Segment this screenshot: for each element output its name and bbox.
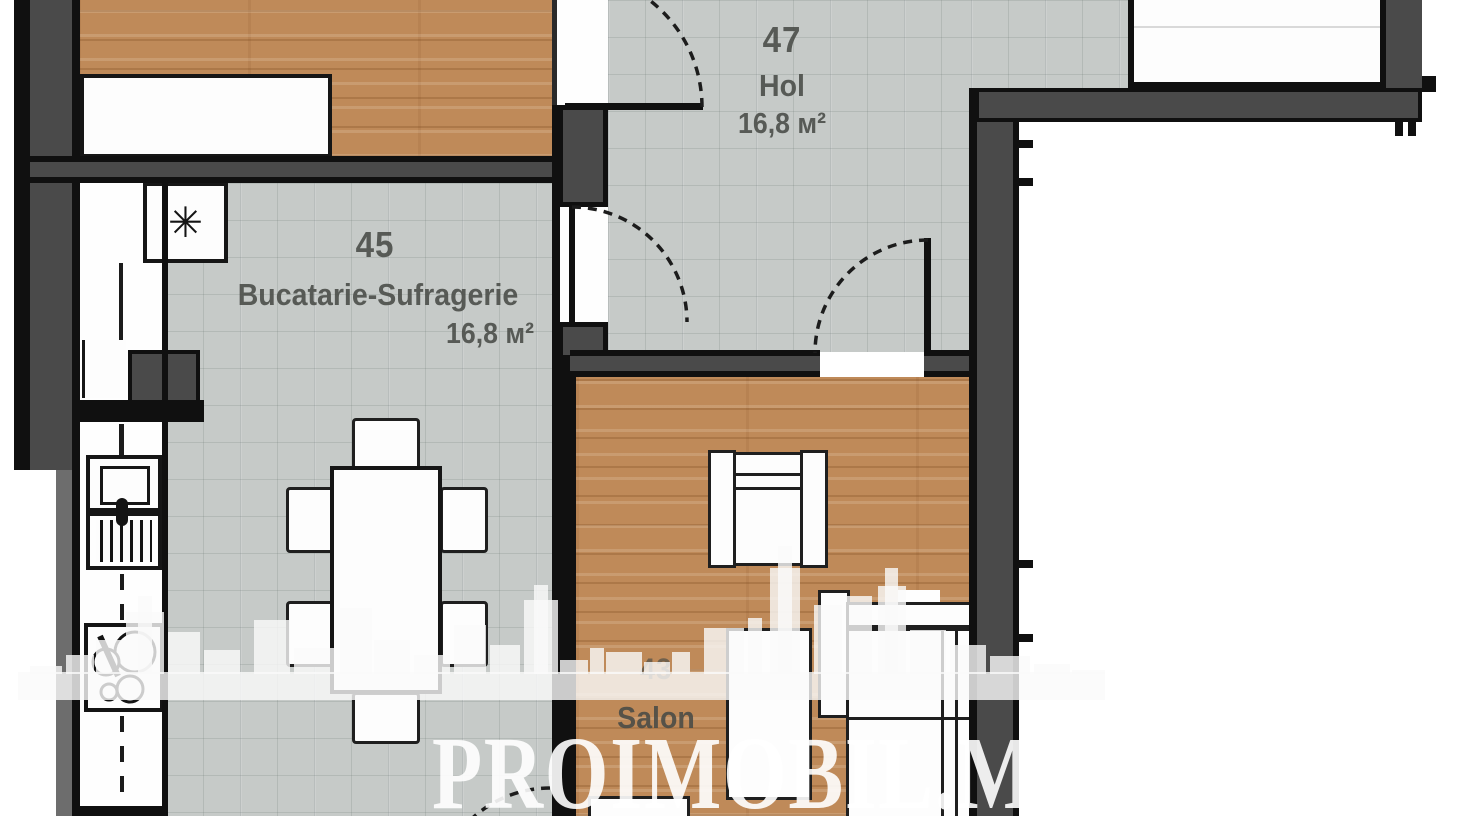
room-number-hol: 47 (718, 22, 847, 58)
room-name-kitchen: Bucatarie-Sufragerie (205, 279, 551, 310)
room-name-hol: Hol (718, 70, 847, 101)
door-arc (572, 207, 687, 322)
room-area-kitchen: 16,8 м² (426, 320, 555, 349)
door-arc (815, 240, 928, 353)
floorplan: ✳ (0, 0, 1460, 816)
room-number-salon: 43 (592, 655, 721, 685)
sink-bowl (115, 632, 155, 672)
sink-bowl (117, 676, 143, 702)
room-number-kitchen: 45 (311, 227, 440, 263)
room-area-hol: 16,8 м² (718, 110, 847, 139)
sink-item (101, 684, 117, 700)
watermark-brand: PROIMOBIL.MD (432, 722, 1097, 816)
door-arc (567, 0, 702, 107)
